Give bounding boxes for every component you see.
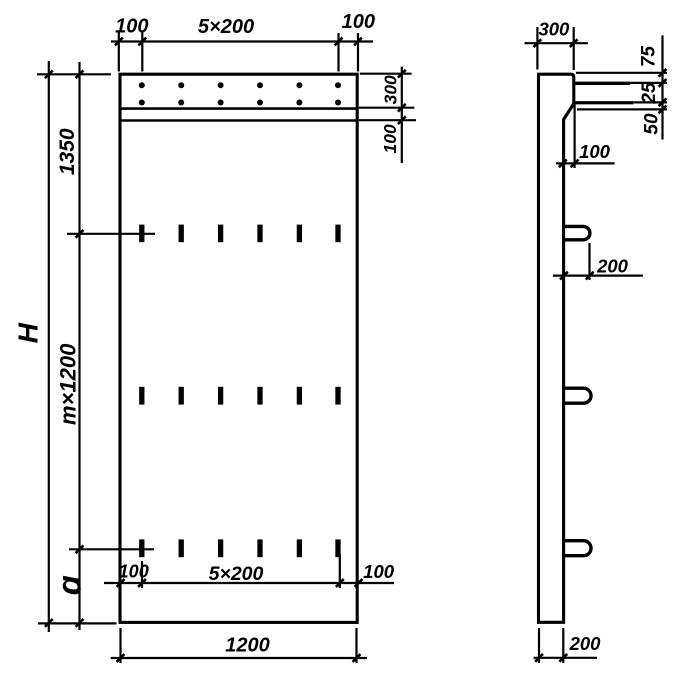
svg-text:100: 100 bbox=[380, 124, 400, 153]
svg-text:200: 200 bbox=[569, 633, 602, 654]
svg-text:5×200: 5×200 bbox=[209, 563, 264, 585]
svg-text:300: 300 bbox=[538, 19, 570, 40]
svg-text:50: 50 bbox=[642, 113, 663, 135]
svg-text:200: 200 bbox=[596, 256, 629, 277]
svg-text:100: 100 bbox=[579, 141, 611, 162]
svg-text:1350: 1350 bbox=[56, 128, 79, 175]
svg-text:100: 100 bbox=[119, 561, 149, 581]
svg-text:1200: 1200 bbox=[225, 634, 270, 656]
svg-text:75: 75 bbox=[639, 46, 660, 68]
svg-text:25: 25 bbox=[639, 82, 660, 105]
svg-text:100: 100 bbox=[363, 561, 395, 582]
svg-text:100: 100 bbox=[115, 16, 148, 38]
svg-text:100: 100 bbox=[342, 11, 375, 33]
svg-text:ɑ: ɑ bbox=[50, 575, 87, 595]
svg-text:300: 300 bbox=[381, 75, 401, 104]
svg-text:m×1200: m×1200 bbox=[55, 343, 80, 425]
svg-text:H: H bbox=[13, 322, 44, 343]
svg-text:5×200: 5×200 bbox=[198, 16, 254, 38]
